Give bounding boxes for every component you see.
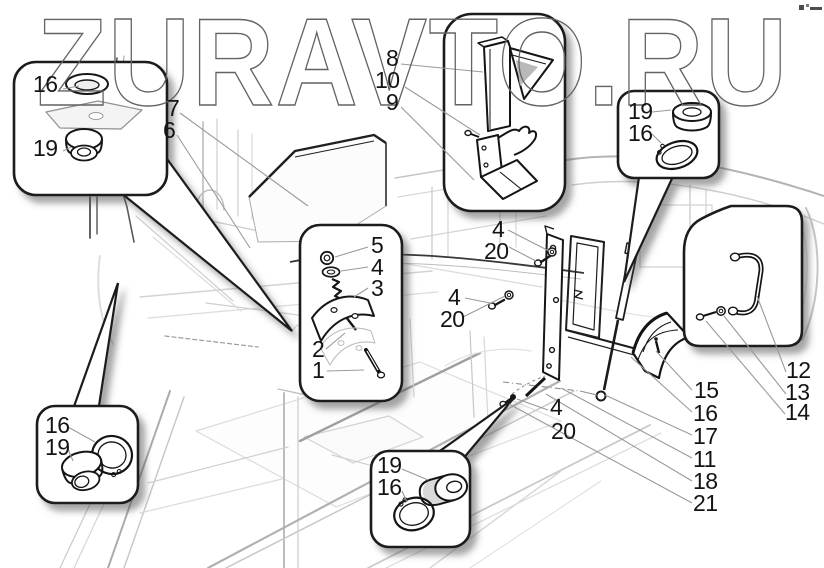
part-label-14: 14 (785, 401, 810, 424)
part-label-right-16: 16 (693, 402, 718, 425)
fender-bracket (633, 313, 689, 378)
part-label-20-left: 20 (440, 308, 465, 331)
part-label-15: 15 (694, 379, 719, 402)
part-label-9: 9 (386, 91, 398, 114)
mount-bracket-plate (526, 226, 563, 396)
part-label-6: 6 (163, 119, 175, 142)
part-label-bottom-mid-16: 16 (377, 476, 402, 499)
part-label-4-lower: 4 (550, 396, 562, 419)
part-label-21: 21 (693, 492, 718, 515)
parts-diagram-canvas: ZURAVTO.RU 16 19 7 6 8 10 9 19 16 5 4 3 … (0, 0, 824, 568)
watermark-text: ZURAVTO.RU (37, 0, 789, 132)
part-label-bottom-left-19: 19 (45, 436, 70, 459)
part-label-20-lower: 20 (551, 420, 576, 443)
corner-mark (799, 4, 822, 10)
part-label-3: 3 (371, 277, 383, 300)
part-label-top-left-16: 16 (33, 73, 58, 96)
callout-right (684, 206, 802, 346)
part-label-1: 1 (312, 359, 324, 382)
part-label-top-left-19: 19 (33, 137, 58, 160)
part-label-top-right-16: 16 (628, 122, 653, 145)
part-label-17: 17 (693, 425, 718, 448)
part-label-20-upper: 20 (484, 240, 509, 263)
